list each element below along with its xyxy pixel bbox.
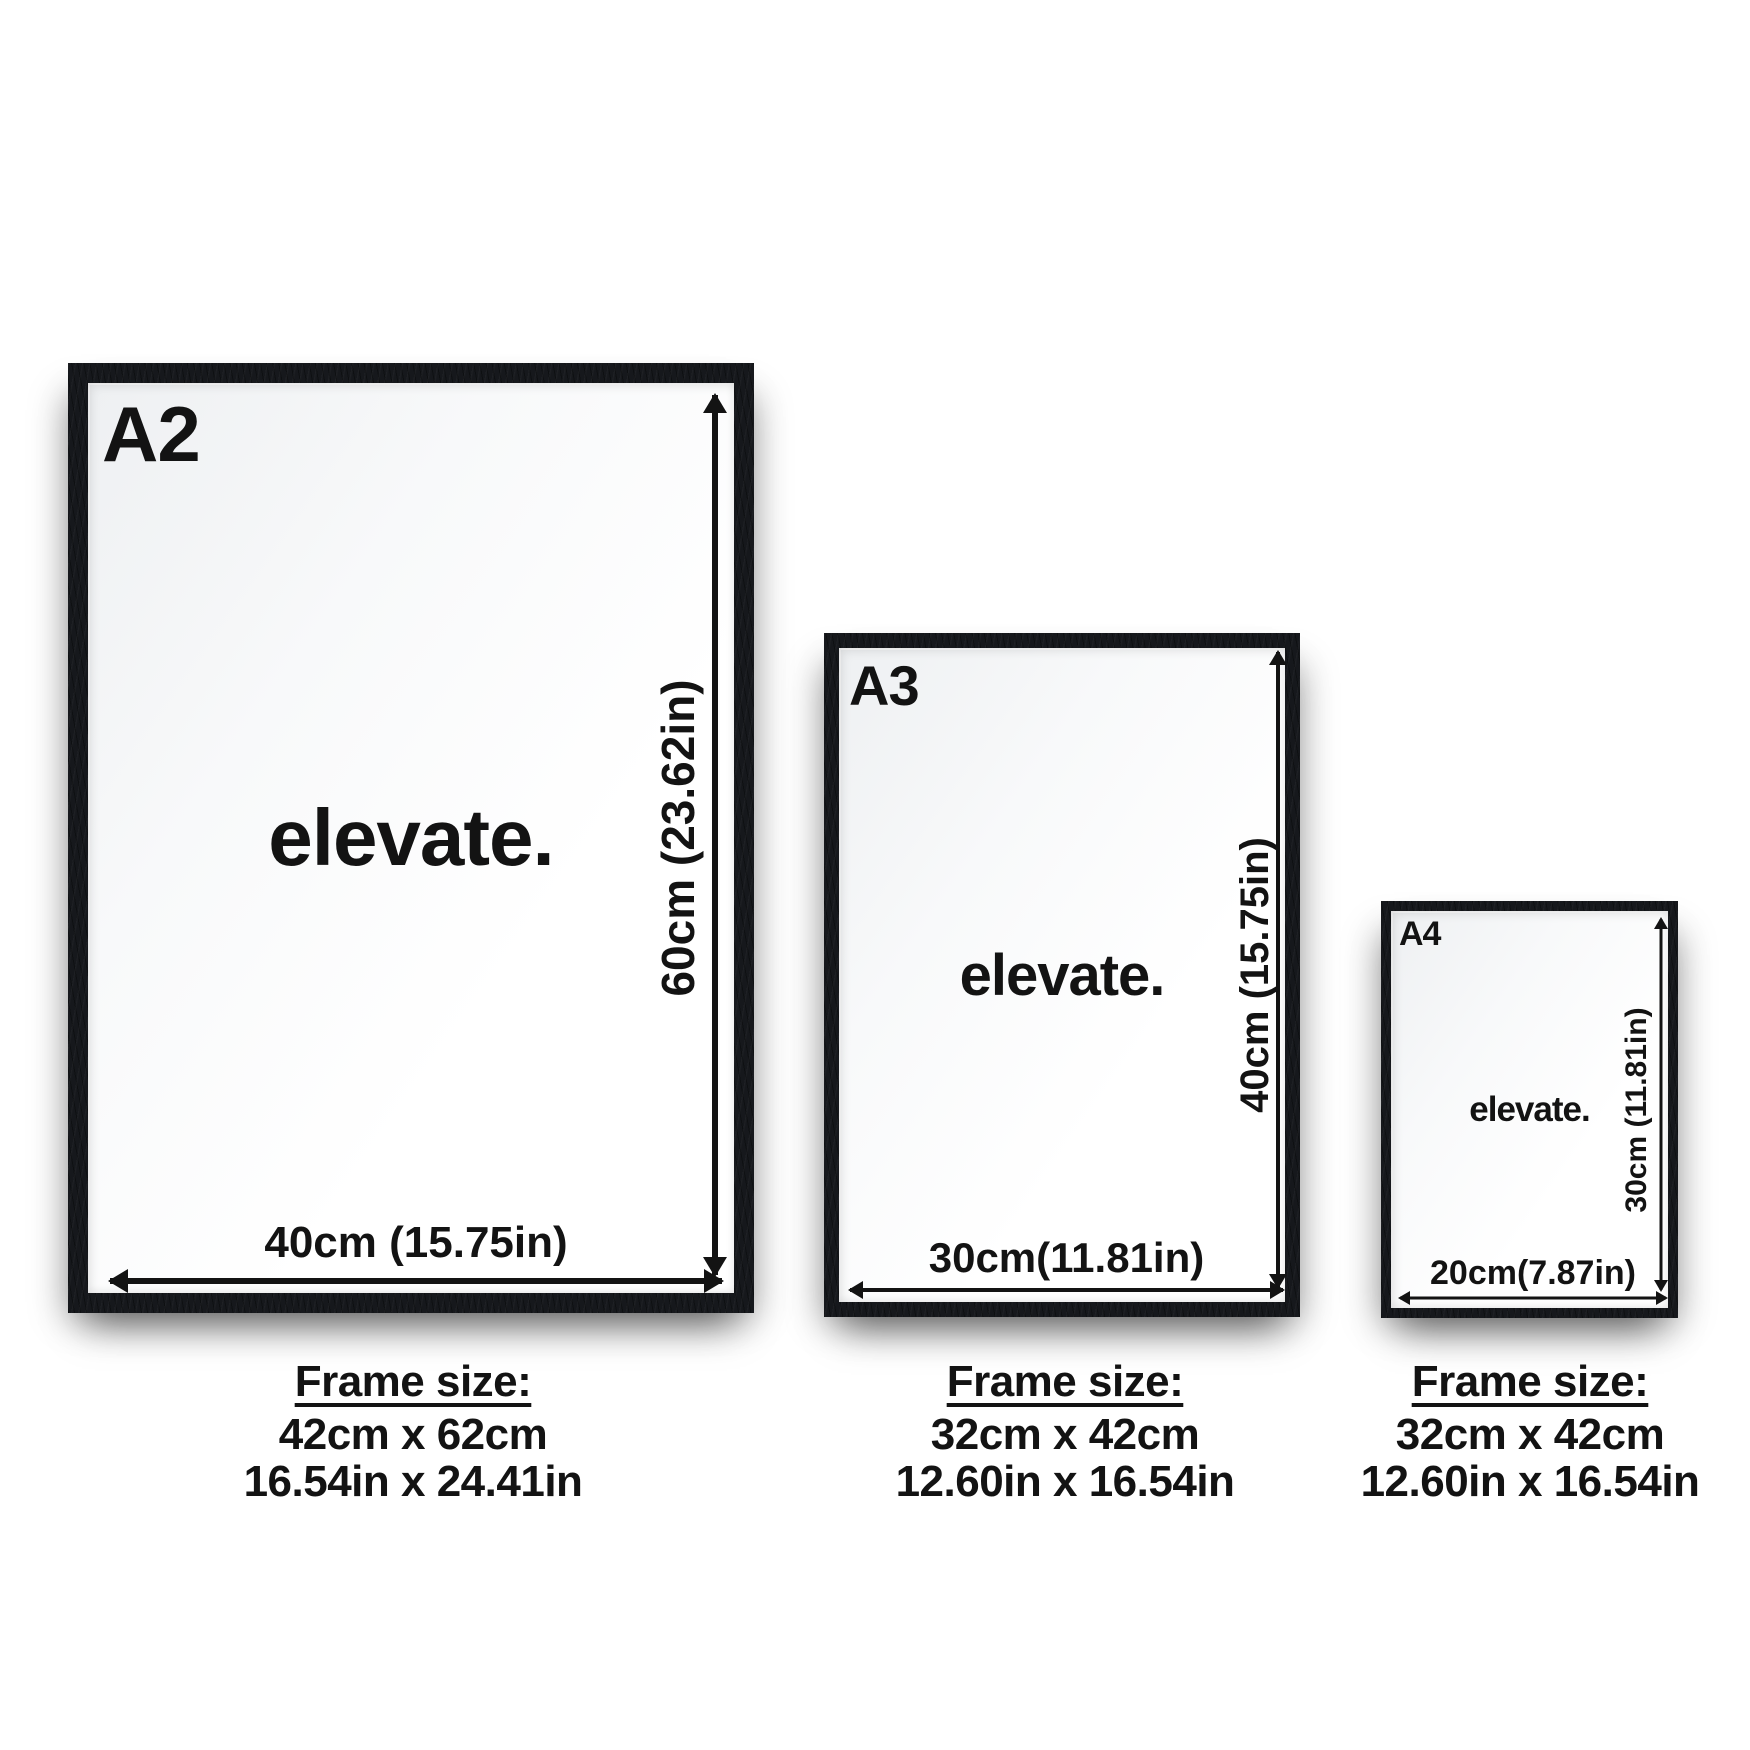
frame-size-in: 12.60in x 16.54in bbox=[855, 1458, 1275, 1505]
horizontal-dimension-arrow bbox=[848, 1280, 1285, 1300]
vertical-dimension-arrow bbox=[703, 393, 727, 1277]
frame-size-caption-a2: Frame size: 42cm x 62cm 16.54in x 24.41i… bbox=[203, 1358, 623, 1505]
horizontal-dimension-arrow bbox=[108, 1269, 724, 1293]
poster-brand-text: elevate. bbox=[839, 648, 1285, 1302]
frame-size-heading: Frame size: bbox=[203, 1358, 623, 1405]
vertical-dimension-arrow bbox=[1654, 917, 1668, 1292]
frame-size-cm: 32cm x 42cm bbox=[855, 1411, 1275, 1458]
vertical-dimension-label: 60cm (23.62in) bbox=[655, 679, 701, 996]
horizontal-dimension-label: 30cm(11.81in) bbox=[848, 1237, 1285, 1279]
dimension-line bbox=[1276, 652, 1280, 1287]
frame-a2: A2 elevate. 60cm (23.62in) 40cm (15.75in… bbox=[68, 363, 754, 1313]
frame-a4: A4 elevate. 30cm (11.81in) 20cm(7.87in) bbox=[1381, 901, 1678, 1318]
frame-size-cm: 32cm x 42cm bbox=[1320, 1411, 1740, 1458]
dimension-line bbox=[850, 1288, 1283, 1292]
arrowhead-right-icon bbox=[1656, 1291, 1668, 1305]
arrowhead-right-icon bbox=[1270, 1281, 1285, 1299]
frame-a3: A3 elevate. 40cm (15.75in) 30cm(11.81in) bbox=[824, 633, 1300, 1317]
dimension-line bbox=[1660, 919, 1663, 1290]
poster-paper-a4: A4 elevate. 30cm (11.81in) 20cm(7.87in) bbox=[1391, 911, 1668, 1308]
dimension-line bbox=[110, 1278, 722, 1284]
frame-size-cm: 42cm x 62cm bbox=[203, 1411, 623, 1458]
horizontal-dimension-arrow bbox=[1398, 1290, 1668, 1306]
poster-paper-a3: A3 elevate. 40cm (15.75in) 30cm(11.81in) bbox=[839, 648, 1285, 1302]
arrowhead-up-icon bbox=[1654, 917, 1668, 929]
arrowhead-right-icon bbox=[704, 1269, 724, 1293]
frame-size-heading: Frame size: bbox=[1320, 1358, 1740, 1405]
horizontal-dimension-label: 40cm (15.75in) bbox=[108, 1221, 724, 1265]
frame-size-heading: Frame size: bbox=[855, 1358, 1275, 1405]
frame-size-in: 12.60in x 16.54in bbox=[1320, 1458, 1740, 1505]
arrowhead-left-icon bbox=[848, 1281, 863, 1299]
dimension-line bbox=[1400, 1297, 1666, 1300]
arrowhead-up-icon bbox=[1269, 650, 1287, 665]
arrowhead-up-icon bbox=[703, 393, 727, 413]
frame-size-caption-a4: Frame size: 32cm x 42cm 12.60in x 16.54i… bbox=[1320, 1358, 1740, 1505]
frame-size-in: 16.54in x 24.41in bbox=[203, 1458, 623, 1505]
poster-brand-text: elevate. bbox=[88, 383, 734, 1293]
vertical-dimension-label: 30cm (11.81in) bbox=[1622, 1007, 1652, 1212]
arrowhead-left-icon bbox=[1398, 1291, 1410, 1305]
arrowhead-left-icon bbox=[108, 1269, 128, 1293]
vertical-dimension-arrow bbox=[1269, 650, 1287, 1289]
frame-size-caption-a3: Frame size: 32cm x 42cm 12.60in x 16.54i… bbox=[855, 1358, 1275, 1505]
dimension-line bbox=[712, 395, 718, 1275]
poster-paper-a2: A2 elevate. 60cm (23.62in) 40cm (15.75in… bbox=[88, 383, 734, 1293]
horizontal-dimension-label: 20cm(7.87in) bbox=[1398, 1256, 1668, 1290]
